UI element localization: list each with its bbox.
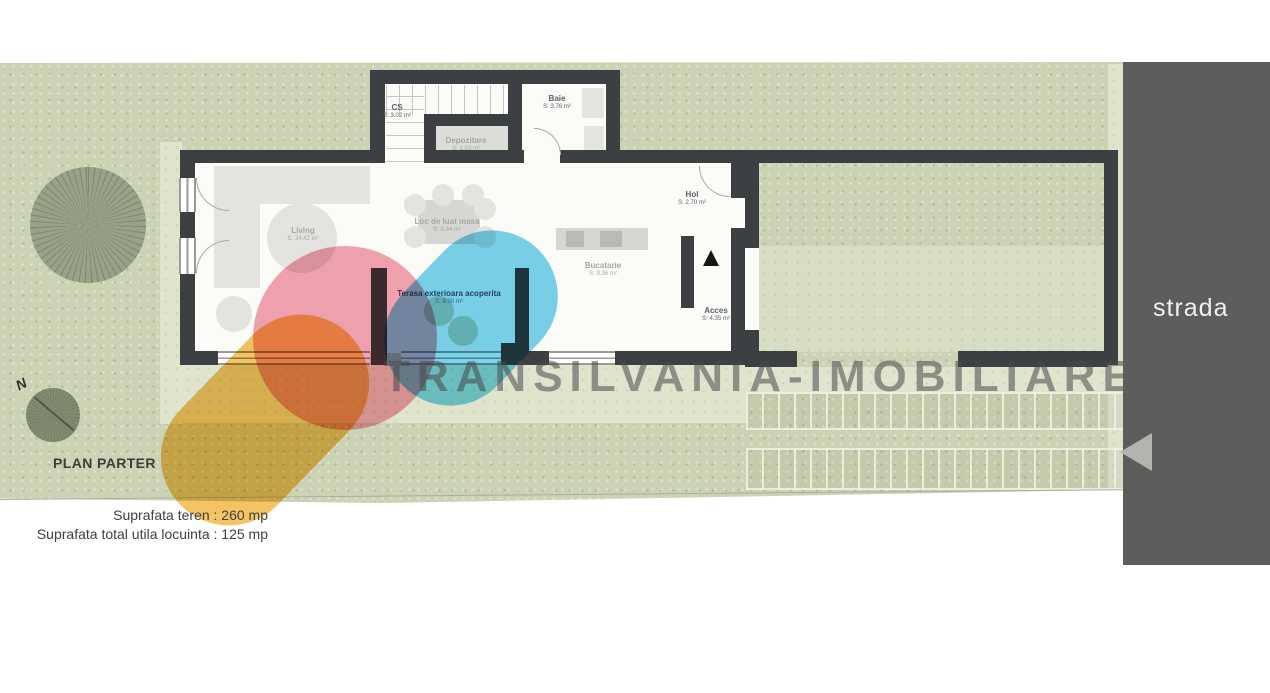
wall — [1104, 150, 1118, 365]
wall — [424, 114, 508, 126]
door-opening — [731, 198, 745, 228]
room-name: Bucatarie — [585, 261, 621, 271]
room-name: Loc de luat masa — [415, 217, 480, 227]
room-area: S: 2.70 m² — [678, 200, 706, 208]
plan-title: PLAN PARTER — [53, 455, 156, 471]
room-label-depozitare: Depozitare S: 2.53 m² — [446, 136, 487, 154]
wall — [560, 150, 618, 163]
room-label-acces: Acces S: 4.35 m² — [702, 306, 730, 324]
courtyard-opening — [745, 248, 759, 330]
room-label-bucatarie: Bucatarie S: 9.36 m² — [585, 261, 621, 279]
armchair — [216, 296, 252, 332]
wall — [745, 163, 759, 248]
street-strip: strada — [1123, 62, 1270, 565]
room-name: Hol — [678, 190, 706, 200]
street-arrow-icon — [1120, 433, 1152, 471]
wall — [745, 150, 1107, 163]
watermark-logo-pink-shape — [253, 246, 437, 430]
surface-house: Suprafata total utila locuinta : 125 mp — [0, 525, 268, 544]
room-label-cs: CS S: 3.02 m² — [383, 103, 411, 121]
stairs-treads-side — [386, 85, 424, 162]
room-name: Depozitare — [446, 136, 487, 146]
wall — [731, 150, 745, 365]
kitchen-stove — [600, 231, 622, 247]
surface-annotations: Suprafata teren : 260 mp Suprafata total… — [0, 506, 268, 544]
chair — [432, 184, 454, 206]
window — [179, 238, 196, 274]
floor-plan-page: N — [0, 0, 1270, 693]
room-area: S: 2.53 m² — [446, 146, 487, 154]
surface-land: Suprafata teren : 260 mp — [0, 506, 268, 525]
room-area: S: 4.35 m² — [702, 316, 730, 324]
street-label: strada — [1153, 294, 1228, 323]
room-name: Acces — [702, 306, 730, 316]
room-area: S: 9.36 m² — [585, 271, 621, 279]
entry-arrow-icon — [703, 250, 719, 266]
room-area: S: 3.02 m² — [383, 113, 411, 121]
room-label-hol: Hol S: 2.70 m² — [678, 190, 706, 208]
watermark-text: TRANSILVANIA-IMOBILIARE — [383, 352, 1139, 402]
courtyard-lower — [759, 246, 1105, 352]
wall — [618, 150, 745, 163]
toilet — [584, 126, 604, 152]
tree-large — [30, 167, 146, 283]
room-area: S: 3.76 m² — [543, 104, 571, 112]
wall — [370, 70, 620, 84]
room-name: Baie — [543, 94, 571, 104]
kitchen-sink — [566, 231, 584, 247]
driveway-pavers-row2 — [746, 448, 1123, 490]
wall — [180, 351, 218, 365]
bath-sink — [582, 88, 604, 118]
room-name: CS — [383, 103, 411, 113]
wall — [681, 236, 694, 308]
wall — [180, 150, 375, 163]
room-area: S: 34.42 m² — [287, 236, 318, 244]
room-name: Living — [287, 226, 318, 236]
window — [179, 178, 196, 212]
room-label-living: Living S: 34.42 m² — [287, 226, 318, 244]
chair — [404, 194, 426, 216]
room-label-baie: Baie S: 3.76 m² — [543, 94, 571, 112]
room-label-dining: Loc de luat masa S: 8.34 m² — [415, 217, 480, 235]
